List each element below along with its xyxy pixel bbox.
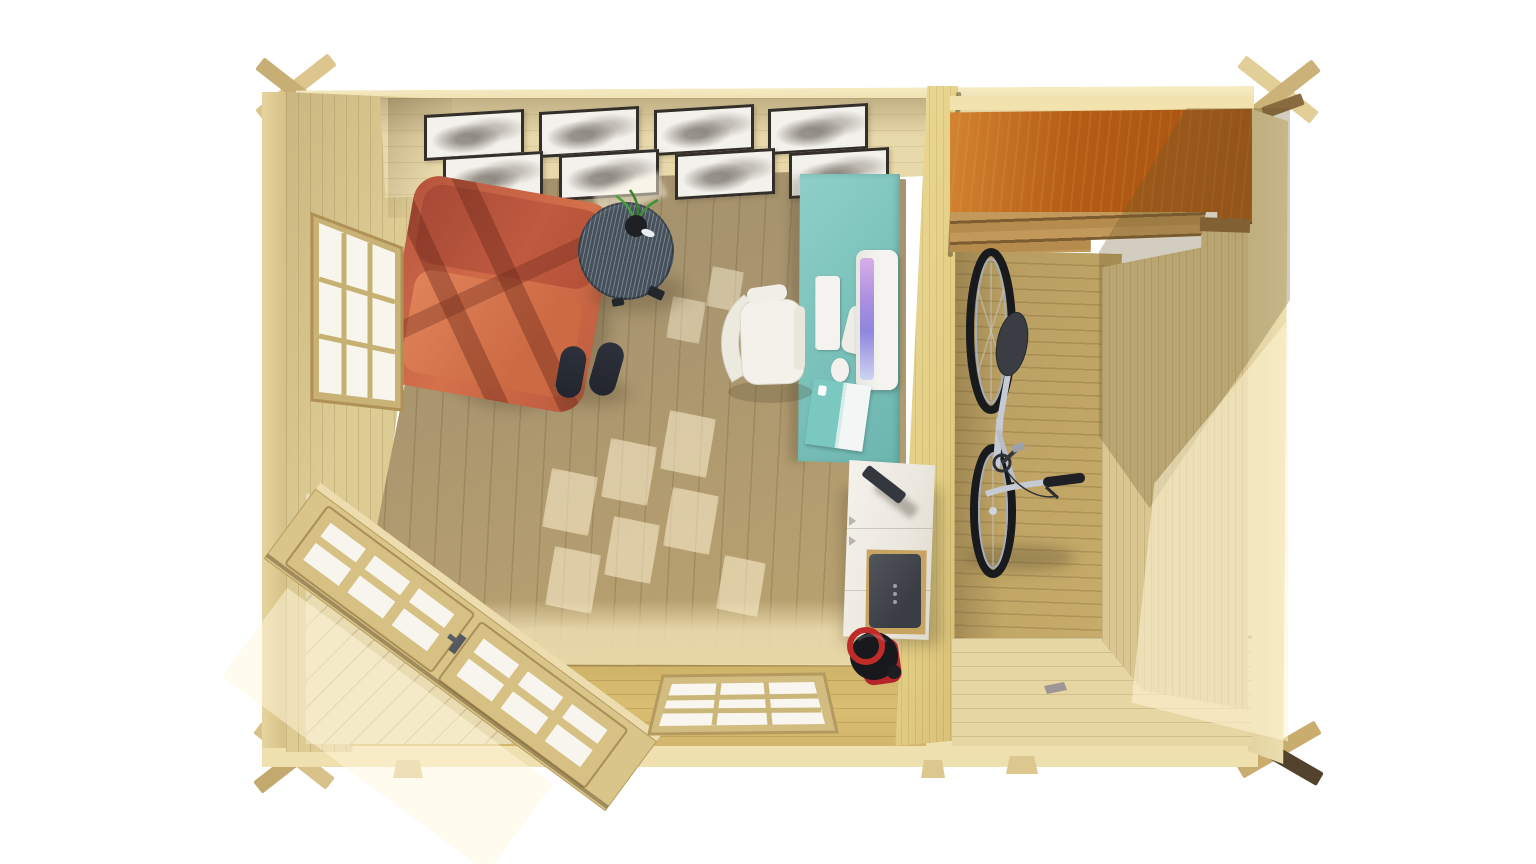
corner-glazed-doors: [193, 483, 661, 864]
pedal: [1011, 442, 1025, 453]
handlebar: [986, 482, 1048, 494]
window-bottom: [649, 674, 837, 734]
window-left: [312, 214, 402, 410]
detail-layer: [0, 0, 1536, 864]
potted-plant: [616, 190, 658, 239]
kettle: [850, 630, 903, 686]
saddle: [992, 310, 1033, 378]
handlebar-grip: [1048, 478, 1080, 482]
bicycle: [970, 252, 1080, 574]
frame-tube: [996, 418, 1000, 470]
front-hub: [989, 507, 997, 515]
floor-bracket: [1044, 682, 1067, 694]
scene-cabin-top-view: [0, 0, 1536, 864]
office-chair: [722, 283, 812, 403]
